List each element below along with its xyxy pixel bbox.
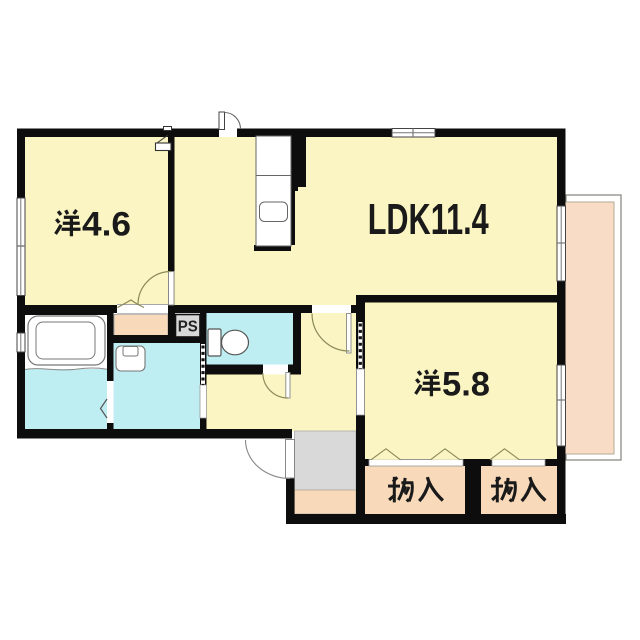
svg-text:5.8: 5.8 (442, 366, 490, 404)
svg-text:LDK11.4: LDK11.4 (368, 196, 489, 244)
svg-text:PS: PS (178, 319, 198, 336)
svg-text:4.6: 4.6 (82, 206, 131, 244)
